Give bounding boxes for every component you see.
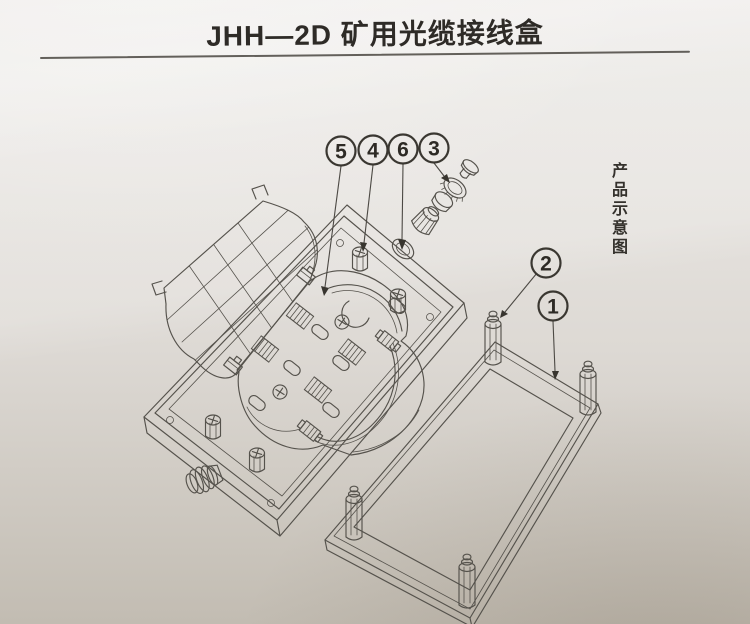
- frame-post: [459, 554, 475, 608]
- callout-4: 4: [359, 136, 388, 165]
- tray-post: [331, 354, 351, 373]
- cable-clamp-fitting: [296, 418, 324, 443]
- callout-6: 6: [389, 135, 418, 164]
- leader-2: [505, 273, 537, 312]
- base-frame: [325, 311, 601, 624]
- gland-dome-nut: [429, 189, 455, 215]
- leader-3: [434, 163, 444, 176]
- lid: [99, 92, 427, 398]
- tray-post: [282, 359, 302, 378]
- tray-screw: [271, 383, 288, 400]
- callout-2-number: 2: [540, 253, 552, 276]
- callout-1-number: 1: [547, 296, 559, 319]
- leader-1: [553, 321, 555, 371]
- leader-lines: [321, 163, 559, 380]
- lid-tab: [252, 185, 268, 199]
- rim-hole: [337, 240, 344, 247]
- cable-clamp-fitting: [374, 328, 402, 353]
- splice-holder-comb: [286, 303, 313, 329]
- leader-5: [325, 166, 341, 287]
- fiber-guide-horseshoe: [342, 301, 369, 327]
- callout-5: 5: [327, 137, 356, 166]
- callout-1: 1: [539, 292, 568, 321]
- lid-grid: [99, 92, 427, 398]
- gland-cap-plug: [455, 157, 480, 182]
- corner-standoff-screw: [250, 448, 265, 472]
- tray-post: [387, 297, 407, 316]
- rim-hole: [167, 417, 174, 424]
- tray-post: [310, 323, 330, 342]
- tray-post: [321, 401, 341, 420]
- callout-6-number: 6: [397, 139, 409, 162]
- frame-post: [485, 311, 501, 365]
- callout-2: 2: [532, 249, 561, 278]
- exploded-view-diagram: 5 4 6 3 2 1: [0, 0, 750, 624]
- gland-seal-disc: [389, 235, 418, 262]
- callout-4-number: 4: [367, 140, 379, 163]
- gland-body: [409, 202, 444, 238]
- callout-3-number: 3: [428, 138, 440, 161]
- corner-standoff-screw: [353, 247, 368, 271]
- corner-standoff-screw: [206, 415, 221, 439]
- photo-of-printed-diagram: JHH—2D 矿用光缆接线盒 产品示意图: [0, 0, 750, 624]
- leader-6: [402, 164, 403, 240]
- leader-4: [364, 165, 373, 243]
- tray-post: [247, 394, 267, 413]
- splice-holder-comb: [338, 339, 365, 365]
- splice-holder-comb: [304, 377, 331, 403]
- rim-hole: [427, 314, 434, 321]
- callout-3: 3: [420, 134, 449, 163]
- callout-5-number: 5: [335, 141, 347, 164]
